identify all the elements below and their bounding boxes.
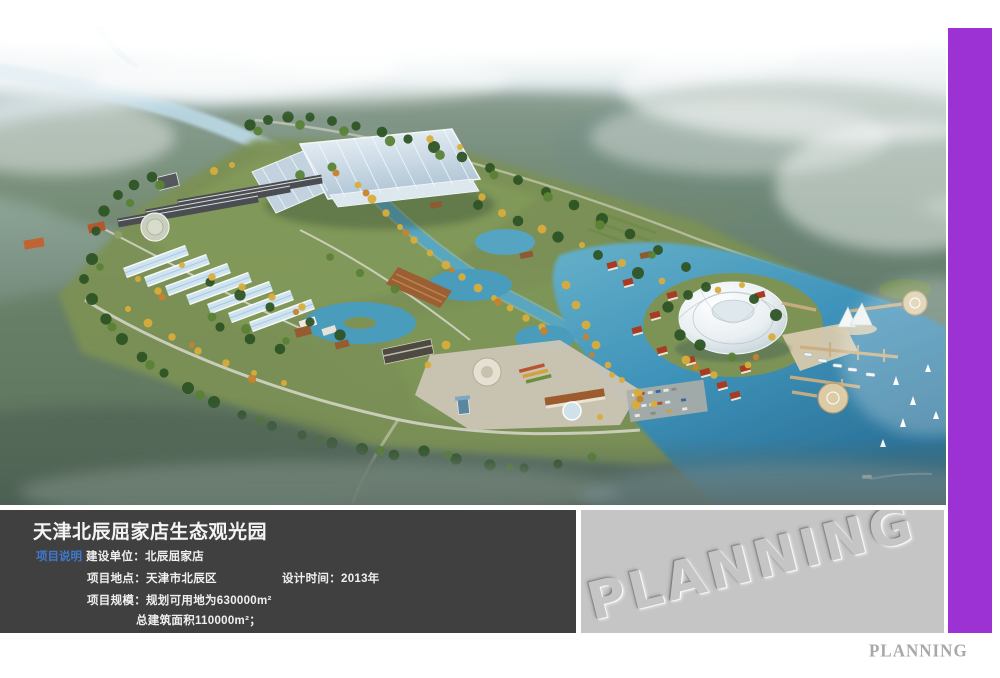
section-label: 项目说明 (36, 552, 82, 564)
watermark-panel: PLANNING (581, 510, 944, 633)
presentation-board: 天津北辰屈家店生态观光园 项目说明 建设单位：北辰屈家店 项目地点：天津市北辰区… (0, 0, 1000, 678)
footer-label: PLANNING (869, 642, 968, 660)
field-construction-unit: 建设单位：北辰屈家店 (86, 552, 204, 564)
project-title: 天津北辰屈家店生态观光园 (33, 523, 267, 542)
planning-watermark: PLANNING (582, 510, 921, 629)
field-scale-line1: 项目规模：规划可用地为630000m² (87, 596, 272, 608)
accent-stripe (948, 28, 992, 633)
project-info-panel: 天津北辰屈家店生态观光园 项目说明 建设单位：北辰屈家店 项目地点：天津市北辰区… (0, 510, 576, 633)
field-design-time: 设计时间：2013年 (282, 574, 380, 586)
field-location: 项目地点：天津市北辰区 (87, 574, 217, 586)
aerial-rendering (0, 27, 946, 505)
field-scale-line2: 总建筑面积110000m²； (136, 616, 261, 628)
